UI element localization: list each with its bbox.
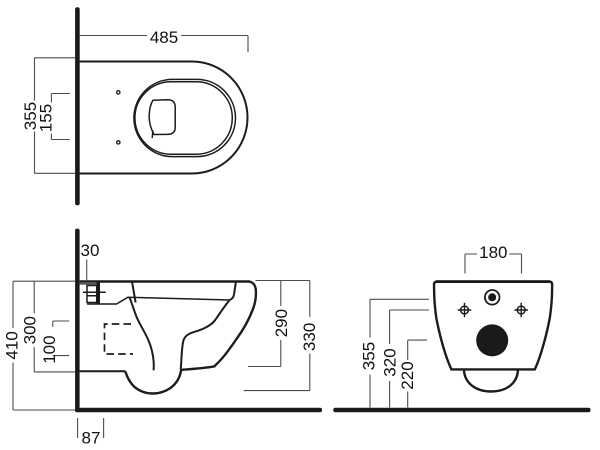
- svg-text:290: 290: [272, 309, 291, 337]
- svg-text:87: 87: [82, 429, 101, 448]
- svg-text:155: 155: [37, 104, 56, 132]
- svg-text:320: 320: [381, 348, 400, 376]
- svg-text:180: 180: [479, 243, 507, 262]
- svg-text:330: 330: [300, 323, 319, 351]
- svg-text:300: 300: [21, 316, 40, 344]
- svg-text:30: 30: [81, 241, 100, 260]
- svg-text:485: 485: [150, 28, 178, 47]
- svg-text:355: 355: [360, 342, 379, 370]
- svg-text:220: 220: [398, 361, 417, 389]
- svg-text:410: 410: [3, 331, 22, 359]
- svg-text:100: 100: [40, 335, 59, 363]
